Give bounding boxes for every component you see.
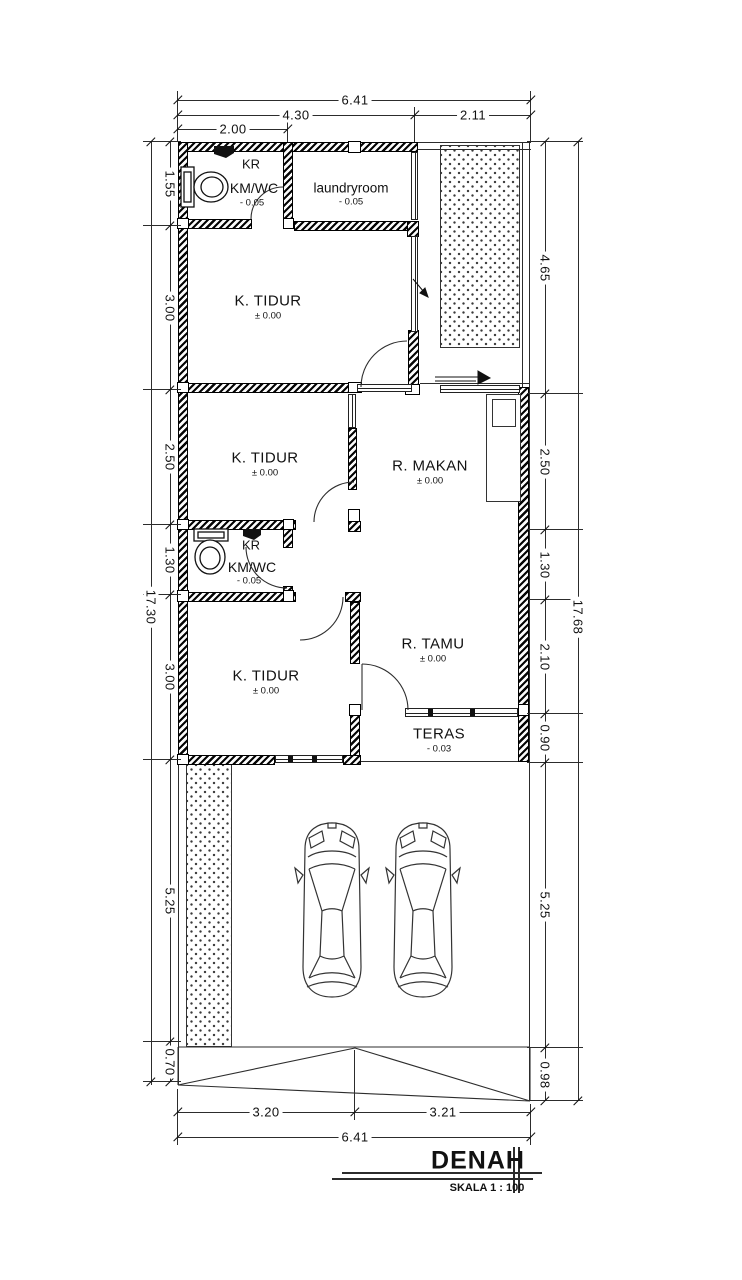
- dim-stub: [143, 759, 181, 760]
- room-level: - 0.03: [413, 744, 465, 755]
- dim-right-4: 2.10: [538, 641, 553, 674]
- room-label-bedroom-bottom: K. TIDUR ± 0.00: [232, 668, 299, 697]
- window-laundry-east: [411, 152, 418, 220]
- boundary-line-right-outer: [529, 142, 530, 1101]
- dim-bottom-total: 6.41: [339, 1130, 372, 1145]
- wall-living-west-a: [350, 602, 360, 664]
- dim-extension: [287, 121, 288, 142]
- wall-bathroom-mid-south: [178, 592, 296, 602]
- wall-bedroom-bottom-north-pillar: [345, 592, 361, 602]
- car-icon-right: [386, 823, 460, 997]
- room-level: - 0.05: [313, 197, 388, 208]
- door-arc-bedroom-bottom: [300, 597, 343, 640]
- dim-top-right-span: 2.11: [457, 108, 489, 123]
- wall-cap: [177, 218, 189, 229]
- floor-plan-canvas: 6.41 4.30 2.11 2.00 1.55 3.00 2.50 1.30 …: [0, 0, 742, 1280]
- wall-living-west-b: [350, 708, 360, 762]
- room-label-bathroom-top: KM/WC: [230, 180, 278, 196]
- carport-left-line: [178, 765, 179, 1085]
- window-bedroom-top-east: [411, 236, 418, 332]
- window-mullion: [288, 756, 293, 762]
- dim-stub: [527, 141, 583, 142]
- dim-stub: [527, 1047, 583, 1048]
- wall-bedroom-mid-east: [348, 428, 357, 490]
- room-label-living: R. TAMU ± 0.00: [401, 636, 464, 665]
- dim-stub: [143, 225, 181, 226]
- wall-cap: [349, 704, 361, 716]
- entry-step-band-east: [440, 385, 520, 393]
- wall-cap: [348, 141, 361, 153]
- dim-left-total: 17.30: [144, 587, 159, 628]
- dim-stub: [143, 524, 181, 525]
- wall-bathroom-top-east: [283, 142, 293, 229]
- room-name: TERAS: [413, 726, 465, 743]
- dim-left-7: 0.70: [163, 1046, 178, 1079]
- room-name: laundryroom: [313, 181, 388, 196]
- wall-bedroom-top-east: [408, 330, 419, 385]
- dim-stub: [527, 1100, 583, 1101]
- room-level-bathroom-mid: - 0.05: [237, 576, 261, 587]
- dim-left-4: 1.30: [163, 544, 178, 577]
- dim-right-3: 1.30: [538, 549, 553, 582]
- room-name: R. TAMU: [401, 636, 464, 653]
- room-label-bathroom-mid: KM/WC: [228, 559, 276, 575]
- room-name: K. TIDUR: [234, 293, 301, 310]
- dim-right-2: 2.50: [538, 446, 553, 479]
- room-level: ± 0.00: [401, 654, 464, 665]
- room-level-bathroom-top: - 0.05: [240, 198, 264, 209]
- toilet-icon-mid: [194, 529, 228, 574]
- dim-top-left-span: 4.30: [280, 108, 313, 123]
- room-label-bedroom-mid: K. TIDUR ± 0.00: [231, 450, 298, 479]
- garden-dotted-area-top-right: [440, 145, 520, 348]
- wall-laundry-southeast-pillar: [407, 221, 419, 237]
- door-arc-living: [362, 664, 408, 710]
- wall-cap: [348, 509, 360, 522]
- wall-cap: [283, 519, 294, 530]
- wall-hall-pillar-north: [348, 521, 361, 532]
- wall-cap: [518, 704, 529, 716]
- boundary-line-top-outer: [413, 142, 531, 143]
- wall-cap: [283, 590, 294, 602]
- window-mullion: [428, 709, 433, 716]
- dim-left-3: 2.50: [163, 441, 178, 474]
- wall-left: [178, 142, 188, 765]
- room-name: R. MAKAN: [392, 458, 468, 475]
- dim-left-2: 3.00: [163, 292, 178, 325]
- boundary-line-right-inner: [522, 142, 523, 390]
- wall-laundry-south: [294, 221, 418, 231]
- wall-bedroom-bottom-south: [178, 755, 275, 765]
- room-level: ± 0.00: [234, 311, 301, 322]
- toilet-icon-top: [181, 167, 228, 207]
- room-level: ± 0.00: [231, 468, 298, 479]
- dim-top-total: 6.41: [339, 93, 372, 108]
- drawing-scale: SKALA 1 : 100: [450, 1182, 525, 1194]
- window-bedroom-bottom-south: [275, 755, 343, 763]
- room-name: K. TIDUR: [231, 450, 298, 467]
- dim-left-5: 3.00: [163, 661, 178, 694]
- wall-top: [178, 142, 418, 152]
- dim-bottom-right-span: 3.21: [427, 1105, 460, 1120]
- window-terrace-front: [405, 708, 518, 717]
- entry-step-band-west: [357, 384, 412, 392]
- dim-right-total: 17.68: [571, 597, 586, 638]
- wall-cap: [283, 218, 294, 229]
- dim-line-left-chain: [170, 141, 171, 1082]
- room-label-kr-top: KR: [242, 157, 260, 172]
- room-label-terrace: TERAS - 0.03: [413, 726, 465, 755]
- dim-stub: [143, 1041, 181, 1042]
- wall-cap: [177, 382, 189, 393]
- window-mullion: [312, 756, 317, 762]
- entry-edge-line: [420, 383, 530, 384]
- wall-bathroom-mid-north: [178, 520, 296, 530]
- wall-bathroom-top-south: [178, 219, 252, 229]
- room-label-kr-mid: KR: [242, 538, 260, 553]
- room-name: K. TIDUR: [232, 668, 299, 685]
- garden-dotted-strip-left: [186, 764, 232, 1047]
- wall-bedroom-top-south: [178, 383, 361, 393]
- car-icon-left: [295, 823, 369, 997]
- dim-right-6: 5.25: [538, 889, 553, 922]
- wall-cap: [177, 590, 189, 602]
- dim-stub: [527, 529, 583, 530]
- kitchen-sink: [492, 399, 516, 427]
- dim-right-1: 4.65: [538, 252, 553, 285]
- wall-bedroom-bottom-south-pillar: [343, 755, 361, 765]
- room-level: ± 0.00: [232, 686, 299, 697]
- dim-line-right-chain: [545, 141, 546, 1101]
- boundary-line-top-inner: [413, 149, 531, 150]
- title-underline-bottom: [332, 1178, 533, 1180]
- dim-stub: [527, 713, 583, 714]
- room-level: ± 0.00: [392, 476, 468, 487]
- room-label-laundry: laundryroom - 0.05: [313, 181, 388, 208]
- dim-left-6: 5.25: [163, 885, 178, 918]
- dim-bottom-left-span: 3.20: [250, 1105, 283, 1120]
- dim-stub: [143, 389, 181, 390]
- window-bedroom-mid-east: [348, 394, 356, 428]
- dim-right-5: 0.90: [538, 722, 553, 755]
- dim-top-small-span: 2.00: [217, 122, 250, 137]
- dim-stub: [527, 762, 583, 763]
- room-label-dining: R. MAKAN ± 0.00: [392, 458, 468, 487]
- room-label-bedroom-top: K. TIDUR ± 0.00: [234, 293, 301, 322]
- dim-right-7: 0.98: [538, 1059, 553, 1092]
- dim-stub: [527, 393, 583, 394]
- door-arc-bedroom-top: [361, 341, 407, 387]
- window-mullion: [470, 709, 475, 716]
- dim-left-1: 1.55: [163, 168, 178, 201]
- drawing-title: DENAH: [431, 1147, 525, 1176]
